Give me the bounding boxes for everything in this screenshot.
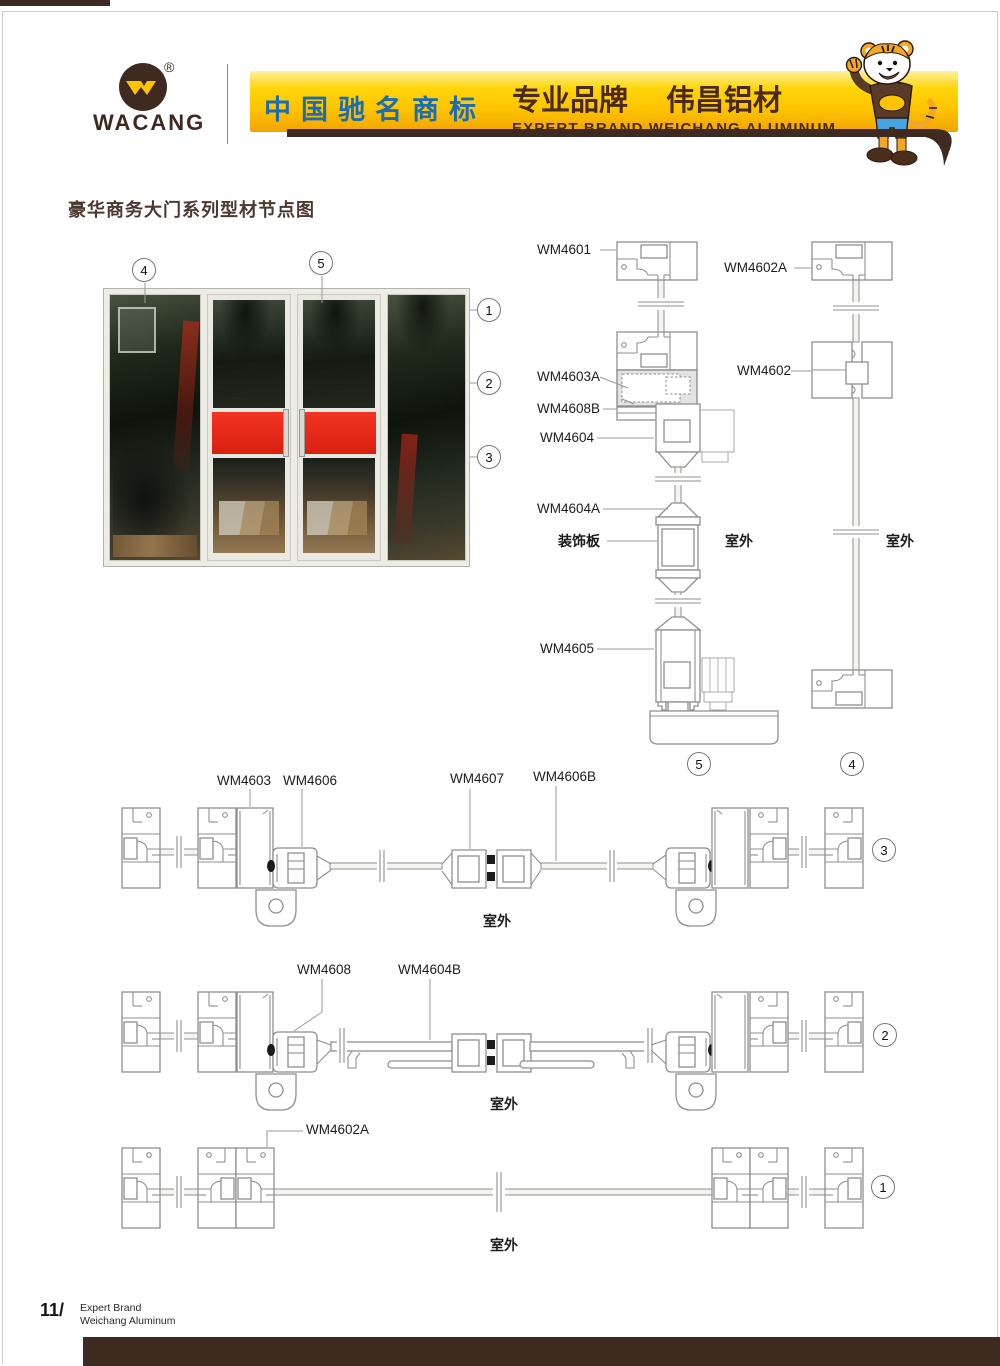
label-wm4604b: WM4604B: [398, 963, 461, 977]
label-decorative-panel: 装饰板: [558, 534, 600, 548]
photo-fixed-panel-right: [387, 294, 466, 561]
section-marker-3: 3: [872, 838, 896, 862]
page-number: 11/: [40, 1300, 64, 1321]
photo-reflection: [118, 307, 156, 353]
label-outdoor-section5: 室外: [725, 534, 753, 548]
door-glass-top: [303, 300, 375, 408]
label-wm4603: WM4603: [217, 774, 271, 788]
banner-brand-en: EXPERT BRAND WEICHANG ALUMINUM: [512, 120, 836, 137]
banner-trademark-text: 中国驰名商标: [264, 88, 486, 127]
header-divider: [227, 64, 228, 144]
label-outdoor-section3: 室外: [483, 914, 511, 928]
label-wm4608: WM4608: [297, 963, 351, 977]
registered-mark: ®: [164, 59, 174, 75]
photo-callout-2: 2: [477, 371, 501, 395]
photo-reflection: [113, 535, 197, 557]
section-marker-1: 1: [871, 1175, 895, 1199]
section-marker-5: 5: [687, 752, 711, 776]
photo-reflection: [219, 501, 279, 535]
label-wm4603a: WM4603A: [537, 370, 600, 384]
photo-reflection: [113, 440, 193, 540]
footer-tagline-line2: Weichang Aluminum: [80, 1315, 176, 1328]
label-wm4604a: WM4604A: [537, 502, 600, 516]
banner-brand-part2: 伟昌铝材: [666, 85, 782, 117]
bottom-bar: [83, 1337, 1000, 1366]
photo-door-right: [297, 294, 381, 561]
section-marker-4: 4: [840, 752, 864, 776]
label-wm4602a: WM4602A: [724, 261, 787, 275]
footer-tagline-line1: Expert Brand: [80, 1302, 176, 1315]
photo-reflection: [220, 300, 270, 360]
photo-door-left: [207, 294, 291, 561]
label-wm4606: WM4606: [283, 774, 337, 788]
photo-callout-1: 1: [477, 298, 501, 322]
footer-tagline: Expert Brand Weichang Aluminum: [80, 1302, 176, 1328]
photo-callout-3: 3: [477, 445, 501, 469]
photo-reflection: [310, 300, 360, 360]
door-handle: [299, 409, 305, 457]
photo-reflection: [396, 295, 450, 355]
door-glass-bottom: [303, 458, 375, 553]
door-handle: [283, 409, 289, 457]
photo-callout-4: 4: [132, 258, 156, 282]
page-title: 豪华商务大门系列型材节点图: [68, 196, 315, 222]
photo-reflection: [394, 434, 418, 545]
door-photo: [103, 288, 470, 567]
banner-brand-cn: 专业品牌伟昌铝材: [512, 77, 836, 119]
door-red-panel: [212, 412, 286, 454]
logo-text: WACANG: [93, 110, 205, 136]
label-wm4601: WM4601: [537, 243, 591, 257]
label-wm4606b: WM4606B: [533, 770, 596, 784]
door-red-panel: [302, 412, 376, 454]
label-outdoor-section4: 室外: [886, 534, 914, 548]
banner-brand-part1: 专业品牌: [512, 85, 628, 117]
banner-brand-block: 专业品牌伟昌铝材 EXPERT BRAND WEICHANG ALUMINUM: [512, 77, 836, 137]
section-marker-2: 2: [873, 1023, 897, 1047]
label-wm4602: WM4602: [737, 364, 791, 378]
photo-callout-5: 5: [309, 251, 333, 275]
label-wm4607: WM4607: [450, 772, 504, 786]
wacang-logo-icon: [118, 62, 168, 112]
label-wm4602a-plan: WM4602A: [306, 1123, 369, 1137]
label-wm4605: WM4605: [540, 642, 594, 656]
catalog-page: ® WACANG 中国驰名商标 专业品牌伟昌铝材 EXPERT BRAND WE…: [0, 0, 1000, 1366]
label-outdoor-section1: 室外: [490, 1238, 518, 1252]
photo-reflection: [307, 501, 367, 535]
label-wm4604: WM4604: [540, 431, 594, 445]
top-left-bar: [0, 0, 110, 6]
label-wm4608b: WM4608B: [537, 402, 600, 416]
tiger-mascot-icon: [842, 36, 942, 168]
photo-fixed-panel-left: [109, 294, 201, 561]
door-glass-bottom: [213, 458, 285, 553]
door-glass-top: [213, 300, 285, 408]
label-outdoor-section2: 室外: [490, 1097, 518, 1111]
